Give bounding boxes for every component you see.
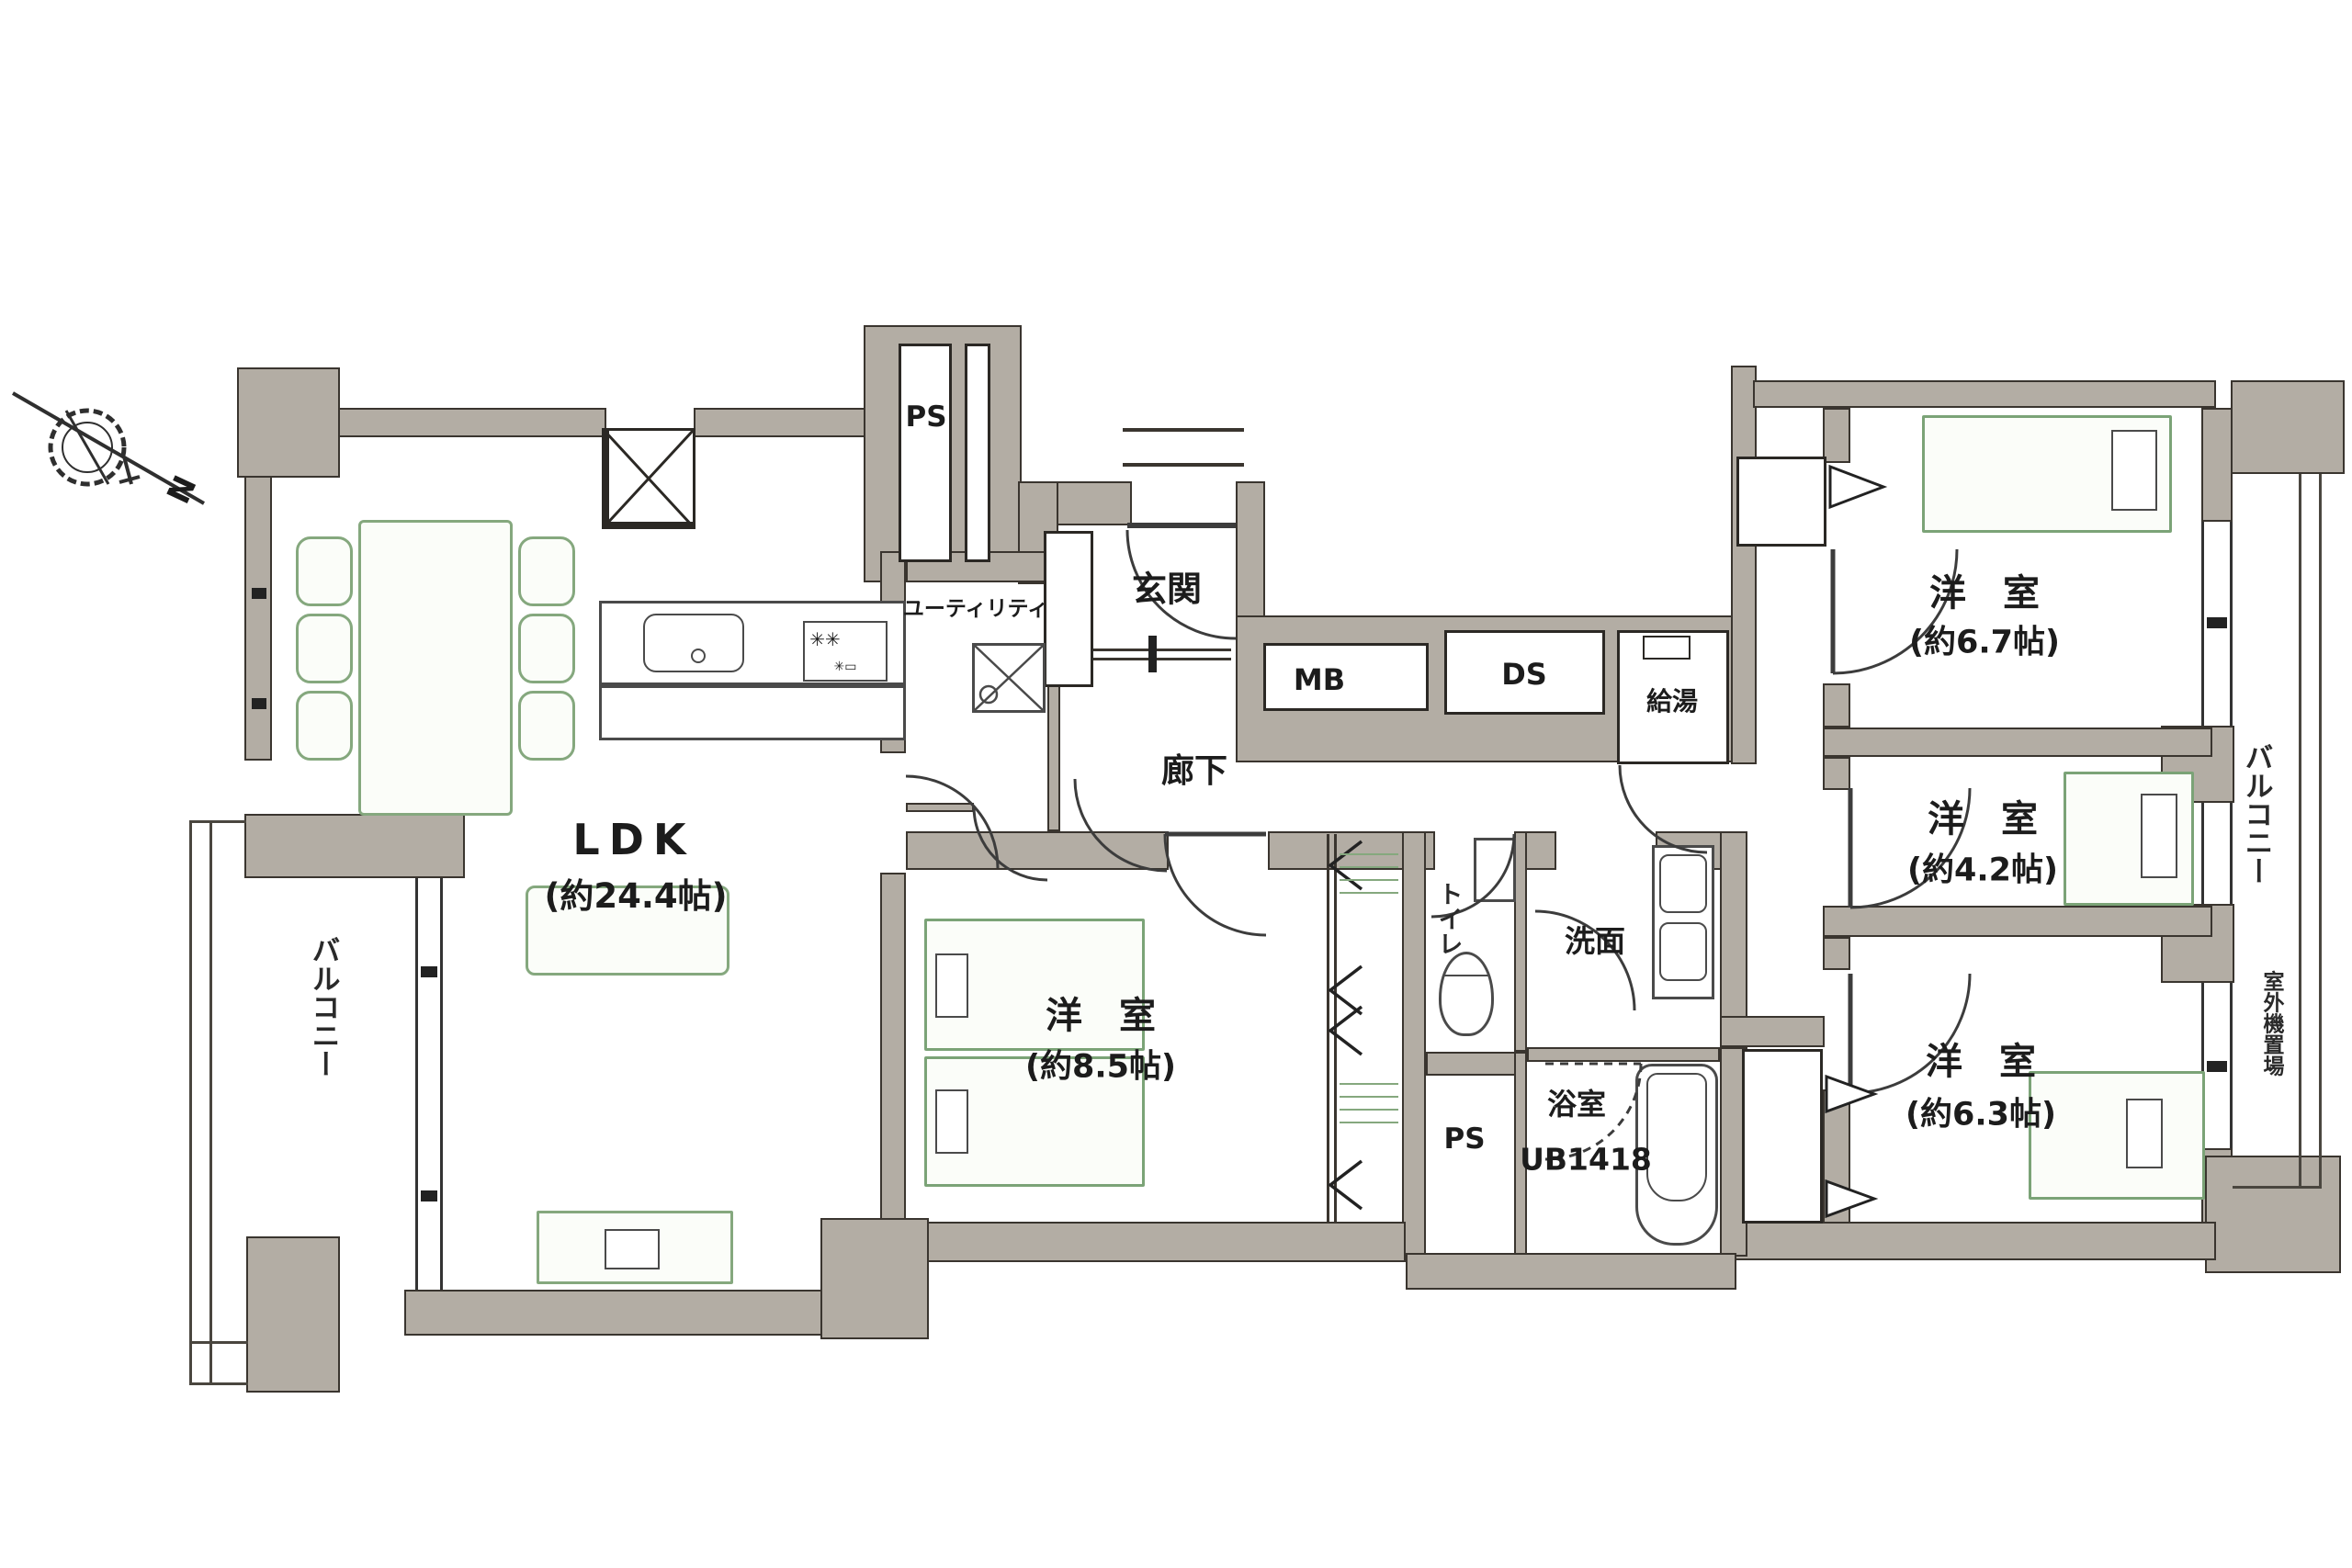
pillar-ne	[2231, 380, 2345, 474]
pillar-nw	[237, 367, 340, 478]
wall-85-west	[880, 873, 906, 1225]
wall-67-west-a	[1823, 408, 1850, 463]
dining-chair	[296, 614, 353, 683]
room-label-bedroom42: 洋 室	[1928, 789, 2038, 842]
stove-burner-icon: ✳✳	[809, 628, 841, 650]
railing-right-inner	[2299, 474, 2301, 1189]
shaft-box	[602, 428, 695, 529]
washer-box	[972, 643, 1046, 713]
toilet-tank	[1474, 838, 1516, 902]
wall-42-west	[1823, 757, 1850, 790]
bathtub-inner	[1646, 1073, 1707, 1201]
bed-42-pillow	[2141, 794, 2177, 878]
wall-divider-67-42	[1823, 728, 2212, 757]
vanity-sink-1	[1659, 854, 1707, 913]
railing-right-outer	[2319, 474, 2322, 1189]
porch-line-2	[1123, 463, 1244, 467]
room-label-balcony-left: バルコニー	[303, 936, 345, 1078]
floor-plan: ✳✳ ✳▭	[0, 0, 2352, 1568]
room-size-ldk: (約24.4帖)	[544, 868, 727, 918]
room-size-bedroom63: (約6.3帖)	[1905, 1089, 2056, 1135]
room-size-bedroom42: (約4.2帖)	[1907, 844, 2058, 891]
mb-box	[1263, 643, 1429, 711]
wall-bed-east-top	[2201, 408, 2233, 522]
room-label-ps-bottom: PS	[1443, 1122, 1485, 1156]
ps-top-duct	[965, 344, 990, 562]
room-label-mb: MB	[1294, 662, 1345, 697]
room-label-balcony-right: バルコニー	[2236, 743, 2278, 886]
window-ldk-balcony	[415, 878, 443, 1290]
wall-closet85-east	[1402, 831, 1426, 1256]
window-tick	[252, 588, 266, 599]
util-south-stub	[906, 803, 974, 812]
railing-left-bottom-1	[189, 1341, 248, 1344]
dining-chair	[518, 536, 575, 606]
wall-ldk-west-step	[244, 814, 465, 878]
porch-line-1	[1123, 428, 1244, 432]
wall-63-west-b	[1823, 1089, 1850, 1224]
room-size-bedroom85: (約8.5帖)	[1025, 1041, 1176, 1088]
railing-left-bottom-2	[189, 1382, 248, 1385]
wall-entrance-east	[1236, 481, 1265, 621]
room-label-entrance: 玄関	[1132, 561, 1202, 612]
wall-toilet-south	[1426, 1052, 1527, 1076]
closet-63	[1742, 1049, 1823, 1224]
room-label-utility: ユーティリティ	[903, 591, 1048, 622]
wall-ldk-south	[404, 1290, 829, 1336]
stove-grill-icon: ✳▭	[834, 660, 857, 674]
bed-85-a-pillow	[935, 953, 968, 1018]
closet-85-front-1	[1327, 834, 1329, 1224]
ps-top-cell	[899, 344, 952, 562]
window-tick	[421, 1190, 437, 1201]
water-heater-unit	[1643, 636, 1690, 660]
wall-bath-wash-divider	[1527, 1047, 1720, 1062]
room-label-ds: DS	[1501, 657, 1547, 692]
room-label-ldk: LDK	[572, 815, 695, 864]
wall-ldk-top-west	[338, 408, 606, 437]
vanity-sink-2	[1659, 922, 1707, 981]
wall-bedblock-west	[1731, 366, 1757, 764]
wall-divider-42-63	[1823, 906, 2212, 937]
room-label-hallway: 廊下	[1161, 744, 1227, 792]
room-label-bedroom63: 洋 室	[1926, 1032, 2036, 1085]
dining-chair	[296, 691, 353, 761]
railing-left-outer	[189, 820, 192, 1385]
wall-67-west-b	[1823, 683, 1850, 728]
room-label-outdoor-unit: 室外機置場	[2256, 971, 2287, 1077]
window-tick	[2207, 1061, 2227, 1072]
railing-left-inner	[209, 820, 212, 1385]
dining-chair	[296, 536, 353, 606]
pillar-ldk-sw-step	[820, 1218, 929, 1339]
wall-85-bottom	[864, 1222, 1406, 1262]
room-label-water-heater: 給湯	[1646, 682, 1698, 718]
window-bedroom42	[2201, 803, 2233, 904]
kitchen-sink	[643, 614, 744, 672]
closet-shelf-lines	[1340, 854, 1398, 1122]
bed-85-b-pillow	[935, 1089, 968, 1154]
door-bedroom85	[1165, 834, 1266, 935]
tv	[605, 1229, 660, 1269]
wall-bedblock-top	[1753, 380, 2216, 408]
wall-vestibule-south	[1720, 1016, 1825, 1047]
room-label-ps-top: PS	[905, 400, 946, 434]
window-tick	[252, 698, 266, 709]
room-label-bathroom: 浴室	[1547, 1081, 1606, 1123]
railing-left-top	[189, 820, 246, 823]
wall-toilet-wash-divider	[1514, 831, 1527, 1052]
room-label-toilet: トイレ	[1430, 882, 1466, 956]
window-tick	[421, 966, 437, 977]
room-size-bathroom: UB1418	[1520, 1142, 1652, 1178]
room-label-bedroom67: 洋 室	[1929, 563, 2040, 616]
bed-63-pillow	[2126, 1099, 2163, 1168]
closet-85-front-2	[1334, 834, 1337, 1224]
shoe-cabinet	[1044, 531, 1093, 687]
window-tick	[2207, 617, 2227, 628]
wall-washroom-east	[1720, 831, 1747, 1018]
dining-table	[358, 520, 513, 816]
compass-north-label: N	[158, 469, 202, 509]
pillar-sw	[246, 1236, 340, 1393]
closet-67	[1736, 457, 1826, 547]
wall-ldk-west-upper	[244, 476, 272, 761]
room-label-bedroom85: 洋 室	[1046, 986, 1156, 1039]
toilet-bowl	[1439, 952, 1494, 1036]
wall-corridor-south-1	[906, 831, 1169, 870]
kitchen-lower-counter	[599, 685, 906, 740]
bed-67-pillow	[2111, 430, 2157, 511]
wall-bed-bottom	[1735, 1222, 2216, 1260]
railing-right-bottom	[2233, 1186, 2321, 1189]
dining-chair	[518, 614, 575, 683]
room-size-bedroom67: (約6.7帖)	[1909, 616, 2060, 663]
wall-ldk-top-east	[694, 408, 870, 437]
wall-63-west-a	[1823, 937, 1850, 970]
dining-chair	[518, 691, 575, 761]
room-label-washroom: 洗面	[1565, 917, 1625, 961]
wall-bath-south	[1406, 1253, 1736, 1290]
kitchen-faucet	[691, 649, 706, 663]
entrance-step-tick	[1148, 636, 1157, 672]
